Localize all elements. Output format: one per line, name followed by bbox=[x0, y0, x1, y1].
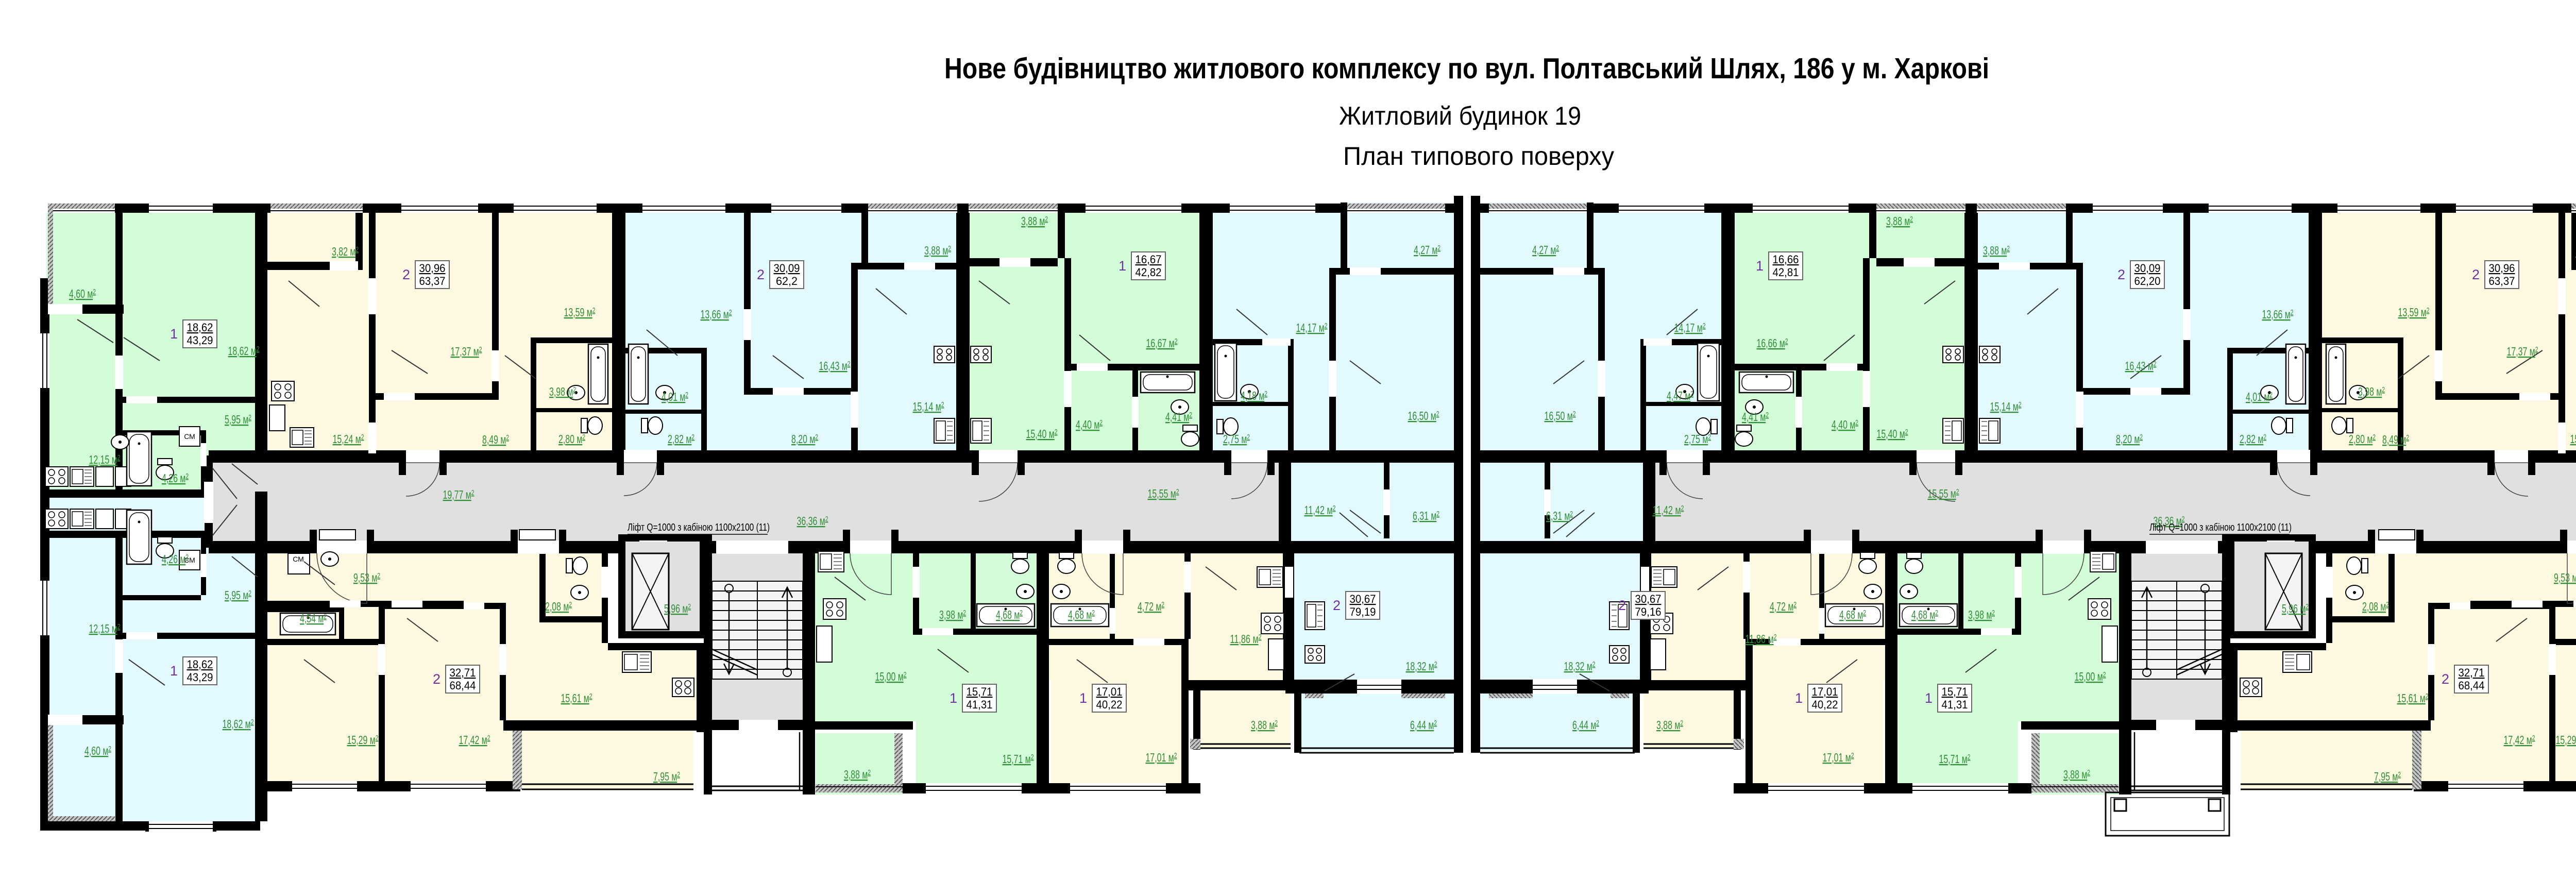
svg-text:19,77 м2: 19,77 м2 bbox=[443, 488, 474, 501]
svg-text:32,71: 32,71 bbox=[450, 666, 476, 679]
svg-text:2,82 м2: 2,82 м2 bbox=[2240, 432, 2266, 446]
svg-text:4,68 м2: 4,68 м2 bbox=[1839, 608, 1866, 621]
svg-text:2: 2 bbox=[402, 267, 410, 282]
svg-text:63,37: 63,37 bbox=[2489, 275, 2515, 288]
svg-text:4,68 м2: 4,68 м2 bbox=[996, 608, 1023, 621]
svg-text:4,54 м2: 4,54 м2 bbox=[300, 612, 327, 625]
svg-text:17,37 м2: 17,37 м2 bbox=[2507, 345, 2538, 358]
svg-text:4,72 м2: 4,72 м2 bbox=[1138, 600, 1164, 613]
svg-text:16,66: 16,66 bbox=[1773, 253, 1799, 266]
svg-text:3,88 м2: 3,88 м2 bbox=[844, 768, 871, 781]
svg-text:2,75 м2: 2,75 м2 bbox=[1223, 432, 1250, 446]
svg-text:4,60 м2: 4,60 м2 bbox=[84, 744, 111, 757]
svg-text:13,59 м2: 13,59 м2 bbox=[564, 306, 596, 319]
svg-text:2,80 м2: 2,80 м2 bbox=[2349, 432, 2376, 446]
svg-text:1: 1 bbox=[1756, 258, 1764, 274]
svg-text:13,66 м2: 13,66 м2 bbox=[701, 308, 732, 321]
svg-text:15,24 м2: 15,24 м2 bbox=[333, 432, 364, 446]
svg-text:1: 1 bbox=[1795, 690, 1803, 706]
svg-text:6,44 м2: 6,44 м2 bbox=[1410, 718, 1437, 732]
svg-text:15,29 м2: 15,29 м2 bbox=[2556, 733, 2576, 747]
svg-text:6,44 м2: 6,44 м2 bbox=[1572, 718, 1599, 732]
svg-text:8,20 м2: 8,20 м2 bbox=[791, 432, 818, 446]
svg-text:42,81: 42,81 bbox=[1773, 266, 1799, 279]
svg-text:14,17 м2: 14,17 м2 bbox=[1674, 321, 1706, 334]
svg-text:1: 1 bbox=[1118, 258, 1126, 274]
svg-text:15,00 м2: 15,00 м2 bbox=[875, 670, 907, 683]
svg-text:15,29 м2: 15,29 м2 bbox=[347, 733, 379, 747]
svg-text:3,98 м2: 3,98 м2 bbox=[939, 608, 966, 621]
svg-text:4,27 м2: 4,27 м2 bbox=[1414, 243, 1440, 257]
svg-text:17,01: 17,01 bbox=[1812, 685, 1838, 698]
svg-text:15,71 м2: 15,71 м2 bbox=[1939, 752, 1971, 766]
svg-text:43,29: 43,29 bbox=[187, 334, 213, 347]
svg-text:9,53 м2: 9,53 м2 bbox=[2554, 571, 2576, 584]
svg-text:3,98 м2: 3,98 м2 bbox=[1968, 608, 1995, 621]
svg-text:30,67: 30,67 bbox=[1635, 593, 1662, 605]
svg-text:Житловий будинок 19: Житловий будинок 19 bbox=[1339, 102, 1581, 130]
svg-text:4,47 м2: 4,47 м2 bbox=[1667, 389, 1693, 402]
svg-text:2,75 м2: 2,75 м2 bbox=[1684, 432, 1711, 446]
svg-text:3,88 м2: 3,88 м2 bbox=[1983, 244, 2010, 257]
svg-text:5,95 м2: 5,95 м2 bbox=[225, 413, 251, 426]
svg-text:15,14 м2: 15,14 м2 bbox=[913, 400, 944, 413]
svg-text:15,61 м2: 15,61 м2 bbox=[561, 691, 592, 705]
svg-text:4,40 м2: 4,40 м2 bbox=[1076, 418, 1103, 431]
svg-text:18,62 м2: 18,62 м2 bbox=[223, 717, 254, 731]
svg-text:15,71: 15,71 bbox=[967, 685, 993, 698]
svg-text:17,37 м2: 17,37 м2 bbox=[451, 345, 482, 358]
svg-text:3,88 м2: 3,88 м2 bbox=[924, 244, 951, 257]
svg-text:4,26 м2: 4,26 м2 bbox=[162, 471, 189, 485]
svg-text:12,15 м2: 12,15 м2 bbox=[89, 622, 121, 635]
svg-text:2: 2 bbox=[1618, 598, 1626, 613]
svg-text:4,18 м2: 4,18 м2 bbox=[1241, 389, 1267, 402]
svg-text:4,60 м2: 4,60 м2 bbox=[69, 287, 96, 300]
svg-text:2,80 м2: 2,80 м2 bbox=[558, 432, 585, 446]
svg-text:4,72 м2: 4,72 м2 bbox=[1770, 600, 1797, 613]
svg-text:16,50 м2: 16,50 м2 bbox=[1408, 409, 1439, 422]
svg-text:17,01 м2: 17,01 м2 bbox=[1146, 751, 1177, 764]
svg-text:18,62 м2: 18,62 м2 bbox=[228, 344, 260, 358]
svg-text:СМ: СМ bbox=[293, 555, 304, 563]
svg-text:5,96 м2: 5,96 м2 bbox=[664, 602, 691, 615]
svg-text:3,88 м2: 3,88 м2 bbox=[2063, 768, 2090, 781]
svg-text:2,08 м2: 2,08 м2 bbox=[545, 600, 572, 613]
svg-text:3,88 м2: 3,88 м2 bbox=[1251, 718, 1278, 732]
svg-text:Нове будівництво житлового ком: Нове будівництво житлового комплексу по … bbox=[944, 52, 1989, 85]
svg-text:6,31 м2: 6,31 м2 bbox=[1546, 509, 1573, 522]
svg-text:16,50 м2: 16,50 м2 bbox=[1545, 409, 1576, 422]
svg-text:2: 2 bbox=[2472, 267, 2480, 282]
svg-text:СМ: СМ bbox=[184, 432, 195, 441]
svg-text:15,00 м2: 15,00 м2 bbox=[2075, 670, 2106, 683]
svg-text:1: 1 bbox=[1925, 690, 1933, 706]
svg-text:1: 1 bbox=[170, 663, 178, 679]
svg-text:79,19: 79,19 bbox=[1350, 605, 1376, 618]
svg-text:4,27 м2: 4,27 м2 bbox=[1532, 243, 1559, 257]
svg-text:40,22: 40,22 bbox=[1812, 698, 1838, 711]
svg-text:5,95 м2: 5,95 м2 bbox=[225, 588, 251, 602]
svg-text:17,42 м2: 17,42 м2 bbox=[459, 733, 490, 747]
svg-text:30,09: 30,09 bbox=[774, 262, 800, 275]
svg-text:62,20: 62,20 bbox=[2134, 275, 2161, 288]
svg-text:15,40 м2: 15,40 м2 bbox=[1877, 427, 1908, 441]
svg-text:40,22: 40,22 bbox=[1096, 698, 1123, 711]
svg-text:16,66 м2: 16,66 м2 bbox=[1757, 336, 1788, 350]
svg-text:2: 2 bbox=[1333, 598, 1341, 613]
svg-text:3,82 м2: 3,82 м2 bbox=[332, 245, 359, 258]
svg-text:30,96: 30,96 bbox=[419, 262, 446, 275]
svg-text:13,66 м2: 13,66 м2 bbox=[2262, 308, 2294, 321]
svg-text:15,14 м2: 15,14 м2 bbox=[1990, 400, 2022, 413]
svg-text:15,71 м2: 15,71 м2 bbox=[1003, 752, 1034, 766]
svg-text:63,37: 63,37 bbox=[419, 275, 446, 288]
svg-text:15,55 м2: 15,55 м2 bbox=[1148, 487, 1179, 500]
svg-text:3,88 м2: 3,88 м2 bbox=[1656, 718, 1683, 732]
svg-text:15,55 м2: 15,55 м2 bbox=[1928, 487, 1959, 500]
svg-text:41,31: 41,31 bbox=[1942, 698, 1968, 711]
svg-text:18,62: 18,62 bbox=[187, 658, 213, 671]
svg-text:3,98 м2: 3,98 м2 bbox=[549, 385, 576, 398]
svg-text:30,67: 30,67 bbox=[1350, 593, 1376, 605]
svg-text:17,01 м2: 17,01 м2 bbox=[1823, 751, 1854, 764]
svg-text:8,49 м2: 8,49 м2 bbox=[2382, 433, 2409, 446]
svg-text:7,95 м2: 7,95 м2 bbox=[2374, 770, 2401, 783]
svg-text:15,61 м2: 15,61 м2 bbox=[2397, 691, 2429, 705]
svg-text:32,71: 32,71 bbox=[2459, 666, 2485, 679]
svg-text:1: 1 bbox=[170, 326, 178, 342]
svg-text:4,41 м2: 4,41 м2 bbox=[1165, 410, 1192, 424]
svg-text:16,43 м2: 16,43 м2 bbox=[819, 359, 851, 373]
svg-text:4,68 м2: 4,68 м2 bbox=[1068, 608, 1095, 621]
svg-text:9,53 м2: 9,53 м2 bbox=[353, 571, 380, 584]
svg-text:17,01: 17,01 bbox=[1096, 685, 1123, 698]
svg-text:62,2: 62,2 bbox=[776, 275, 798, 288]
svg-text:4,01 м2: 4,01 м2 bbox=[662, 390, 688, 403]
svg-text:68,44: 68,44 bbox=[450, 679, 476, 692]
svg-text:2: 2 bbox=[433, 671, 440, 687]
svg-text:4,68 м2: 4,68 м2 bbox=[1911, 608, 1938, 621]
svg-text:18,32 м2: 18,32 м2 bbox=[1564, 660, 1596, 673]
svg-text:43,29: 43,29 bbox=[187, 671, 213, 684]
svg-text:18,32 м2: 18,32 м2 bbox=[1406, 660, 1437, 673]
svg-text:Ліфт Q=1000 з кабіною 1100х210: Ліфт Q=1000 з кабіною 1100х2100 (11) bbox=[628, 522, 770, 533]
svg-text:16,67: 16,67 bbox=[1136, 253, 1162, 266]
svg-text:3,98 м2: 3,98 м2 bbox=[2358, 385, 2385, 398]
svg-text:1: 1 bbox=[1079, 690, 1087, 706]
svg-text:1: 1 bbox=[950, 690, 957, 706]
svg-text:3,88 м2: 3,88 м2 bbox=[1886, 214, 1913, 228]
svg-text:4,01 м2: 4,01 м2 bbox=[2246, 390, 2273, 403]
svg-text:8,49 м2: 8,49 м2 bbox=[482, 433, 509, 446]
svg-text:7,95 м2: 7,95 м2 bbox=[653, 770, 680, 783]
svg-text:11,42 м2: 11,42 м2 bbox=[1304, 503, 1336, 517]
svg-text:11,42 м2: 11,42 м2 bbox=[1653, 503, 1684, 517]
svg-text:2,82 м2: 2,82 м2 bbox=[668, 432, 694, 446]
svg-text:12,15 м2: 12,15 м2 bbox=[89, 453, 121, 466]
svg-text:42,82: 42,82 bbox=[1136, 266, 1162, 279]
svg-text:15,40 м2: 15,40 м2 bbox=[1026, 427, 1058, 441]
svg-text:68,44: 68,44 bbox=[2459, 679, 2485, 692]
svg-text:2,08 м2: 2,08 м2 bbox=[2362, 600, 2389, 613]
svg-text:79,16: 79,16 bbox=[1635, 605, 1662, 618]
svg-text:11,86 м2: 11,86 м2 bbox=[1745, 632, 1777, 646]
svg-text:План типового поверху: План типового поверху bbox=[1343, 142, 1614, 171]
svg-text:5,96 м2: 5,96 м2 bbox=[2282, 602, 2309, 615]
svg-text:13,59 м2: 13,59 м2 bbox=[2398, 306, 2430, 319]
svg-text:4,41 м2: 4,41 м2 bbox=[1742, 410, 1769, 424]
svg-text:8,20 м2: 8,20 м2 bbox=[2116, 432, 2143, 446]
svg-text:30,09: 30,09 bbox=[2134, 262, 2161, 275]
svg-text:11,86 м2: 11,86 м2 bbox=[1230, 632, 1262, 646]
svg-text:17,42 м2: 17,42 м2 bbox=[2504, 733, 2535, 747]
svg-text:2: 2 bbox=[757, 267, 765, 282]
svg-text:Ліфт Q=1000 з кабіною 1100х210: Ліфт Q=1000 з кабіною 1100х2100 (11) bbox=[2149, 522, 2292, 533]
svg-text:4,40 м2: 4,40 м2 bbox=[1832, 418, 1858, 431]
svg-text:30,96: 30,96 bbox=[2489, 262, 2515, 275]
svg-text:36,36 м2: 36,36 м2 bbox=[797, 514, 828, 528]
svg-text:16,67 м2: 16,67 м2 bbox=[1146, 336, 1178, 350]
svg-text:6,31 м2: 6,31 м2 bbox=[1413, 509, 1439, 522]
svg-text:41,31: 41,31 bbox=[967, 698, 993, 711]
svg-text:15,24 м2: 15,24 м2 bbox=[2570, 432, 2576, 446]
svg-text:2: 2 bbox=[2442, 671, 2449, 687]
svg-text:16,43 м2: 16,43 м2 bbox=[2125, 359, 2157, 373]
svg-text:СМ: СМ bbox=[184, 556, 195, 564]
svg-text:2: 2 bbox=[2117, 267, 2125, 282]
svg-text:18,62: 18,62 bbox=[187, 321, 213, 334]
svg-text:3,88 м2: 3,88 м2 bbox=[1021, 214, 1048, 228]
svg-text:15,71: 15,71 bbox=[1942, 685, 1968, 698]
svg-text:14,17 м2: 14,17 м2 bbox=[1296, 321, 1328, 334]
